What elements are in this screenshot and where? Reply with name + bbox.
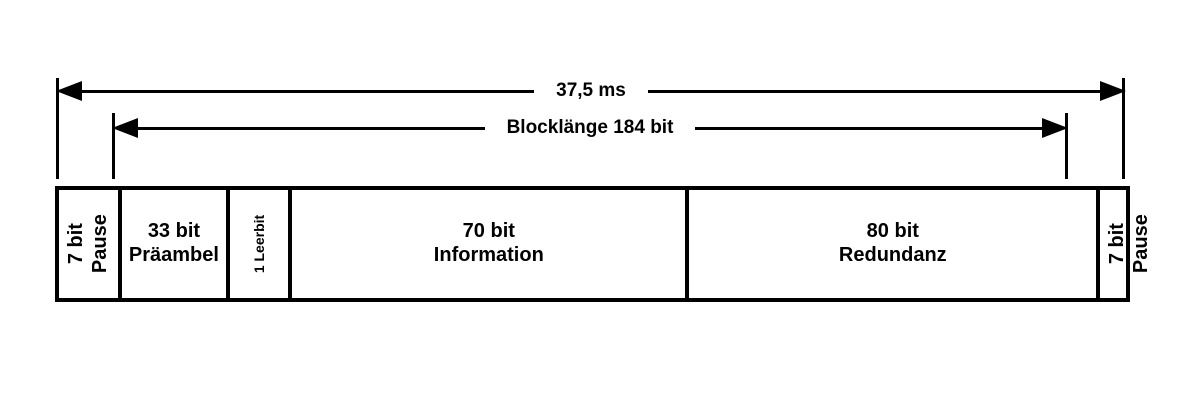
segment-label: 80 bit: [839, 220, 947, 244]
arrow-line: [82, 90, 534, 93]
segment-label: Präambel: [129, 244, 219, 268]
inner-left-tick: [112, 113, 115, 179]
frame-structure-diagram: 37,5 ms Blocklänge 184 bit 7 bit Pause 3…: [0, 0, 1200, 400]
segment-label: Redundanz: [839, 244, 947, 268]
outer-right-tick: [1122, 78, 1125, 179]
left-arrowhead-icon: [112, 118, 138, 138]
segment-pause-left: 7 bit Pause: [59, 190, 122, 298]
block-length-arrow: Blocklänge 184 bit: [112, 116, 1068, 140]
timing-frame-box: 7 bit Pause 33 bit Präambel 1 Leerbit 70…: [55, 186, 1130, 302]
arrow-line: [648, 90, 1100, 93]
segment-label: 33 bit: [129, 220, 219, 244]
segment-label: Pause: [1130, 215, 1154, 274]
block-length-label: Blocklänge 184 bit: [485, 116, 696, 140]
segment-label: 7 bit: [1106, 215, 1130, 274]
total-duration-label: 37,5 ms: [534, 79, 648, 103]
segment-information: 70 bit Information: [292, 190, 689, 298]
segment-redundanz: 80 bit Redundanz: [689, 190, 1100, 298]
segment-label: 1 Leerbit: [251, 215, 267, 273]
inner-right-tick: [1065, 113, 1068, 179]
outer-left-tick: [56, 78, 59, 179]
arrow-line: [695, 127, 1042, 130]
segment-label: Pause: [88, 215, 112, 274]
segment-leerbit: 1 Leerbit: [230, 190, 292, 298]
segment-label: 70 bit: [434, 220, 544, 244]
left-arrowhead-icon: [56, 81, 82, 101]
total-duration-arrow: 37,5 ms: [56, 79, 1126, 103]
segment-pause-right: 7 bit Pause: [1100, 190, 1159, 298]
segment-label: 7 bit: [65, 215, 89, 274]
arrow-line: [138, 127, 485, 130]
segment-label: Information: [434, 244, 544, 268]
segment-praeambel: 33 bit Präambel: [122, 190, 230, 298]
